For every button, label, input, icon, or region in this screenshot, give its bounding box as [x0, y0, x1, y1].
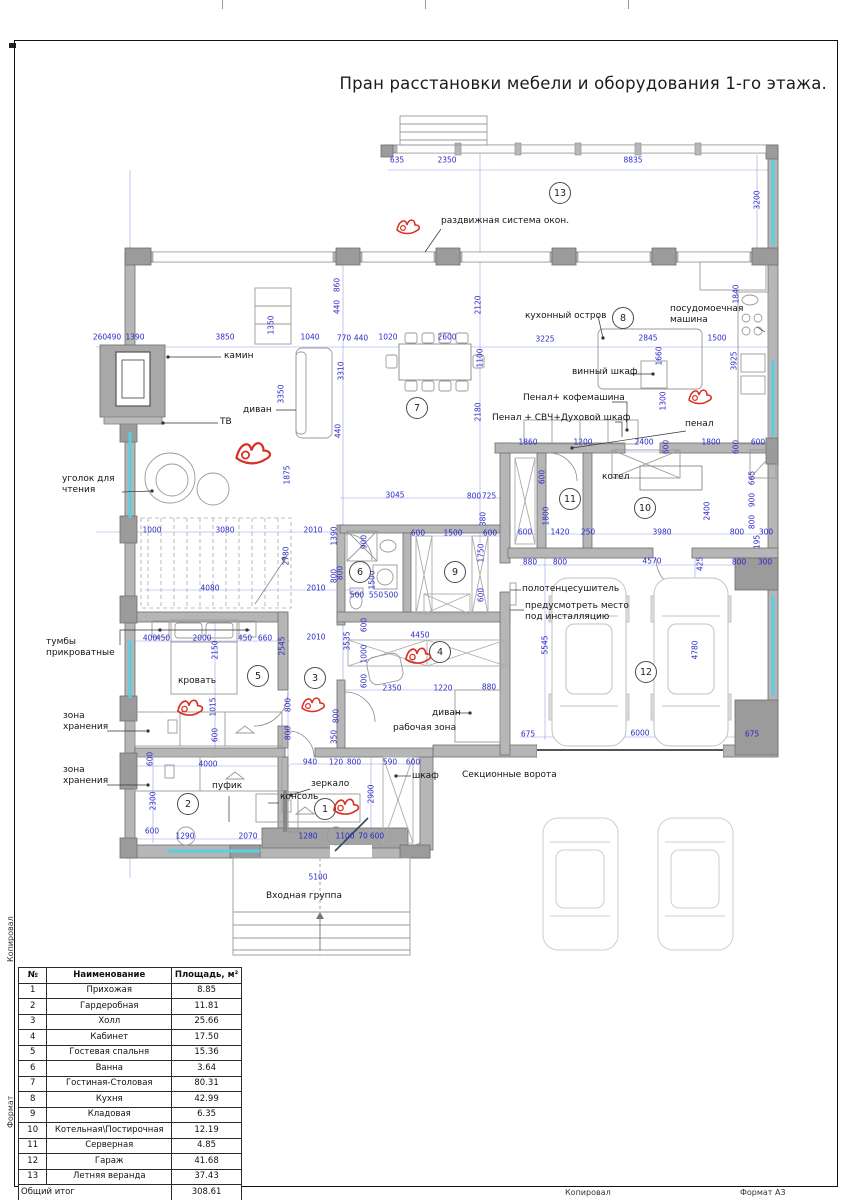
dimension-label: 2350 [382, 684, 401, 692]
plan-label: Секционные ворота [462, 770, 557, 781]
dimension-label: 4000 [198, 760, 217, 768]
dimension-label: 2780 [282, 546, 290, 565]
dimension-label: 3225 [535, 335, 554, 343]
dimension-label: 1100 [335, 832, 354, 840]
dimension-label: 800 [730, 528, 744, 536]
table-row: 7Гостиная-Столовая80.31 [19, 1076, 242, 1092]
table-cell: 7 [19, 1076, 47, 1092]
table-cell: 4.85 [172, 1138, 242, 1154]
table-cell: 25.66 [172, 1014, 242, 1030]
dimension-label: 860 [333, 278, 341, 292]
dimension-label: 900 [748, 493, 756, 507]
dimension-label: 600 [732, 440, 740, 454]
dimension-label: 1000 [360, 644, 368, 663]
dimension-label: 2150 [211, 640, 219, 659]
dimension-label: 2600 [437, 333, 456, 341]
dimension-label: 1280 [298, 832, 317, 840]
table-row: 3Холл25.66 [19, 1014, 242, 1030]
table-cell: Серверная [47, 1138, 172, 1154]
table-cell: 13 [19, 1169, 47, 1185]
dimension-label: 1500 [443, 529, 462, 537]
dimension-label: 800 [748, 515, 756, 529]
dimension-label: 70 [358, 832, 368, 840]
dimension-label: 1500 [707, 334, 726, 342]
room-number-13: 13 [549, 182, 571, 204]
dimension-label: 600 [406, 758, 420, 766]
table-cell: 11 [19, 1138, 47, 1154]
table-cell: 80.31 [172, 1076, 242, 1092]
room-number-2: 2 [177, 793, 199, 815]
dimension-label: 8835 [623, 156, 642, 164]
plan-label: рабочая зона [393, 723, 456, 734]
dimension-label: 600 [662, 440, 670, 454]
dimension-label: 3080 [215, 526, 234, 534]
dimension-label: 440 [354, 334, 368, 342]
table-row: 10Котельная\Постирочная12.19 [19, 1123, 242, 1139]
plan-label: полотенцесушитель [522, 584, 619, 595]
table-row: 2Гардеробная11.81 [19, 999, 242, 1015]
dimension-label: 600 [483, 529, 497, 537]
dimension-label: 1800 [542, 506, 550, 525]
side-copied-by: Копировал [6, 916, 15, 962]
plan-label: винный шкаф [572, 367, 638, 378]
dimension-label: 3535 [343, 631, 351, 650]
total-label: Общий итог [19, 1185, 172, 1200]
dimension-label: 3850 [215, 333, 234, 341]
table-cell: 12 [19, 1154, 47, 1170]
dimension-label: 500 [350, 591, 364, 599]
dimension-label: 2545 [278, 636, 286, 655]
table-cell: 1 [19, 983, 47, 999]
red-revision-mark [299, 693, 327, 719]
table-cell: Гараж [47, 1154, 172, 1170]
table-cell: Прихожая [47, 983, 172, 999]
red-revision-mark [232, 436, 274, 475]
dimension-label: 3200 [753, 190, 761, 209]
dimension-label: 600 [477, 588, 485, 602]
table-cell: Котельная\Постирочная [47, 1123, 172, 1139]
dimension-label: 590 [383, 758, 397, 766]
dimension-label: 425 [696, 557, 704, 571]
room-number-11: 11 [559, 488, 581, 510]
table-row: 4Кабинет17.50 [19, 1030, 242, 1046]
dimension-label: 490 [107, 333, 121, 341]
dimension-label: 1300 [659, 391, 667, 410]
dimension-label: 1420 [550, 528, 569, 536]
dimension-label: 800 [332, 709, 340, 723]
dimension-label: 675 [745, 730, 759, 738]
side-format: Формат [6, 1096, 15, 1128]
dimension-label: 600 [360, 674, 368, 688]
dimension-label: 660 [258, 634, 272, 642]
table-row: 12Гараж41.68 [19, 1154, 242, 1170]
dimension-label: 600 [146, 752, 154, 766]
dimension-label: 2900 [367, 784, 375, 803]
dimension-label: 3350 [277, 384, 285, 403]
dimension-label: 2350 [437, 156, 456, 164]
table-cell: 17.50 [172, 1030, 242, 1046]
table-cell: 37.43 [172, 1169, 242, 1185]
dimension-label: 600 [538, 470, 546, 484]
plan-label: уголок для чтения [62, 474, 115, 496]
room-number-7: 7 [406, 397, 428, 419]
dimension-label: 440 [333, 300, 341, 314]
dimension-label: 3980 [652, 528, 671, 536]
table-row: 9Кладовая6.35 [19, 1107, 242, 1123]
table-cell: 6 [19, 1061, 47, 1077]
dimension-label: 1350 [267, 315, 275, 334]
plan-label: Пенал + СВЧ+Духовой шкаф [492, 413, 630, 424]
dimension-label: 900 [360, 535, 368, 549]
room-number-3: 3 [304, 667, 326, 689]
table-cell: Холл [47, 1014, 172, 1030]
dimension-label: 1100 [476, 348, 484, 367]
dimension-label: 880 [482, 683, 496, 691]
dimension-label: 800 [467, 492, 481, 500]
plan-label: ТВ [220, 417, 232, 428]
dimension-label: 1390 [125, 333, 144, 341]
dimension-label: 2180 [474, 402, 482, 421]
room-number-9: 9 [444, 561, 466, 583]
plan-label: тумбы прикроватные [46, 637, 115, 659]
dimension-label: 5100 [308, 873, 327, 881]
room-number-12: 12 [635, 661, 657, 683]
dimension-label: 4780 [691, 640, 699, 659]
table-row: 13Летняя веранда37.43 [19, 1169, 242, 1185]
table-cell: 8 [19, 1092, 47, 1108]
plan-label: камин [224, 351, 253, 362]
footer-copied-by: Копировал [565, 1188, 611, 1197]
table-cell: 42.99 [172, 1092, 242, 1108]
dimension-label: 800 [284, 726, 292, 740]
table-cell: 2 [19, 999, 47, 1015]
dimension-label: 3310 [337, 361, 345, 380]
dimension-label: 380 [479, 512, 487, 526]
dimension-label: 1290 [175, 832, 194, 840]
dimension-label: 1750 [477, 543, 485, 562]
table-cell: 3.64 [172, 1061, 242, 1077]
plan-label: диван [432, 708, 461, 719]
room-number-5: 5 [247, 665, 269, 687]
plan-label: пенал [685, 419, 714, 430]
plan-label: шкаф [412, 771, 439, 782]
dimension-label: 2000 [192, 634, 211, 642]
room-number-10: 10 [634, 497, 656, 519]
dimension-label: 2010 [306, 584, 325, 592]
dimension-label: 3045 [385, 491, 404, 499]
table-cell: 41.68 [172, 1154, 242, 1170]
dimension-label: 800 [553, 558, 567, 566]
dimension-label: 1040 [300, 333, 319, 341]
dimension-label: 1390 [330, 526, 338, 545]
dimension-label: 1840 [732, 284, 740, 303]
plan-label: зона хранения [63, 711, 108, 733]
plan-label: Пенал+ кофемашина [523, 393, 625, 404]
table-row: 8Кухня42.99 [19, 1092, 242, 1108]
table-cell: Кухня [47, 1092, 172, 1108]
plan-label: диван [243, 405, 272, 416]
dimension-label: 800 [336, 566, 344, 580]
dimension-label: 550 [369, 591, 383, 599]
red-revision-mark [394, 215, 422, 241]
dimension-label: 5545 [541, 635, 549, 654]
red-revision-mark [686, 385, 714, 411]
drawing-sheet: Пран расстановки мебели и оборудования 1… [0, 0, 849, 1200]
dimension-label: 195 [753, 535, 761, 549]
dimension-label: 260 [93, 333, 107, 341]
dimension-label: 600 [211, 728, 219, 742]
dimension-label: 120 [329, 758, 343, 766]
table-header-row: № Наименование Площадь, м² [19, 968, 242, 984]
plan-label: кровать [178, 676, 216, 687]
dimension-label: 500 [384, 591, 398, 599]
room-area-table: № Наименование Площадь, м² 1Прихожая8.85… [18, 967, 242, 1200]
table-total-row: Общий итог 308.61 [19, 1185, 242, 1200]
plan-label: зеркало [311, 779, 349, 790]
dimension-label: 1220 [433, 684, 452, 692]
dimension-label: 600 [411, 529, 425, 537]
table-cell: 12.19 [172, 1123, 242, 1139]
dimension-label: 440 [334, 424, 342, 438]
dimension-label: 300 [758, 558, 772, 566]
table-cell: Гостевая спальня [47, 1045, 172, 1061]
table-cell: 11.81 [172, 999, 242, 1015]
dimension-label: 450 [238, 634, 252, 642]
table-cell: Гардеробная [47, 999, 172, 1015]
dimension-label: 1000 [142, 526, 161, 534]
dimension-label: 450 [156, 634, 170, 642]
dimension-label: 1875 [283, 465, 291, 484]
table-cell: 9 [19, 1107, 47, 1123]
dimension-label: 1860 [518, 438, 537, 446]
dimension-label: 600 [360, 618, 368, 632]
dimension-label: 350 [330, 730, 338, 744]
dimension-label: 770 [337, 334, 351, 342]
dimension-label: 2845 [638, 334, 657, 342]
table-cell: Летняя веранда [47, 1169, 172, 1185]
plan-label: раздвижная система окон. [441, 216, 569, 227]
table-row: 6Ванна3.64 [19, 1061, 242, 1077]
dimension-label: 800 [347, 758, 361, 766]
dimension-label: 4450 [410, 631, 429, 639]
table-cell: 3 [19, 1014, 47, 1030]
dimension-label: 675 [521, 730, 535, 738]
dimension-label: 725 [482, 492, 496, 500]
table-cell: Кабинет [47, 1030, 172, 1046]
dimension-label: 800 [284, 698, 292, 712]
dimension-label: 2120 [474, 295, 482, 314]
table-row: 5Гостевая спальня15.36 [19, 1045, 242, 1061]
room-number-6: 6 [349, 561, 371, 583]
table-cell: 5 [19, 1045, 47, 1061]
dimension-label: 600 [145, 827, 159, 835]
plan-label: предусмотреть место под инсталляцию [525, 601, 629, 623]
dimension-label: 6000 [630, 729, 649, 737]
dimension-label: 2010 [303, 526, 322, 534]
dimension-label: 600 [518, 528, 532, 536]
red-revision-mark [403, 643, 434, 672]
dimension-label: 600 [370, 832, 384, 840]
dimension-label: 1660 [655, 346, 663, 365]
dimension-label: 250 [581, 528, 595, 536]
footer-format: Формат А3 [740, 1188, 786, 1197]
dimension-label: 3925 [730, 351, 738, 370]
table-cell: Кладовая [47, 1107, 172, 1123]
table-row: 11Серверная4.85 [19, 1138, 242, 1154]
red-revision-mark [175, 695, 206, 724]
plan-label: пуфик [212, 781, 242, 792]
plan-label: зона хранения [63, 765, 108, 787]
dimension-label: 4570 [642, 557, 661, 565]
dimension-label: 1800 [701, 438, 720, 446]
plan-label: посудомоечная машина [670, 304, 743, 326]
room-number-8: 8 [612, 307, 634, 329]
table-cell: 8.85 [172, 983, 242, 999]
dimension-label: 1015 [209, 697, 217, 716]
total-value: 308.61 [172, 1185, 242, 1200]
dimension-label: 2300 [149, 791, 157, 810]
plan-label: консоль [280, 792, 318, 803]
plan-label: Входная группа [266, 891, 342, 902]
dimension-label: 800 [732, 558, 746, 566]
plan-label: котел [602, 472, 629, 483]
table-cell: 6.35 [172, 1107, 242, 1123]
col-number: № [19, 968, 47, 984]
col-name: Наименование [47, 968, 172, 984]
dimension-label: 600 [751, 438, 765, 446]
plan-label: кухонный остров [525, 311, 606, 322]
dimension-label: 2070 [238, 832, 257, 840]
dimension-label: 635 [390, 156, 404, 164]
red-revision-mark [331, 794, 362, 823]
dimension-label: 940 [303, 758, 317, 766]
table-cell: Гостиная-Столовая [47, 1076, 172, 1092]
dimension-label: 665 [748, 471, 756, 485]
dimension-label: 2400 [634, 438, 653, 446]
dimension-label: 1020 [378, 333, 397, 341]
dimension-label: 2400 [703, 501, 711, 520]
dimension-label: 1200 [573, 438, 592, 446]
table-row: 1Прихожая8.85 [19, 983, 242, 999]
table-cell: 4 [19, 1030, 47, 1046]
dimension-label: 2010 [306, 633, 325, 641]
dimension-label: 880 [523, 558, 537, 566]
dimension-label: 4080 [200, 584, 219, 592]
table-cell: 10 [19, 1123, 47, 1139]
col-area: Площадь, м² [172, 968, 242, 984]
table-cell: Ванна [47, 1061, 172, 1077]
table-cell: 15.36 [172, 1045, 242, 1061]
